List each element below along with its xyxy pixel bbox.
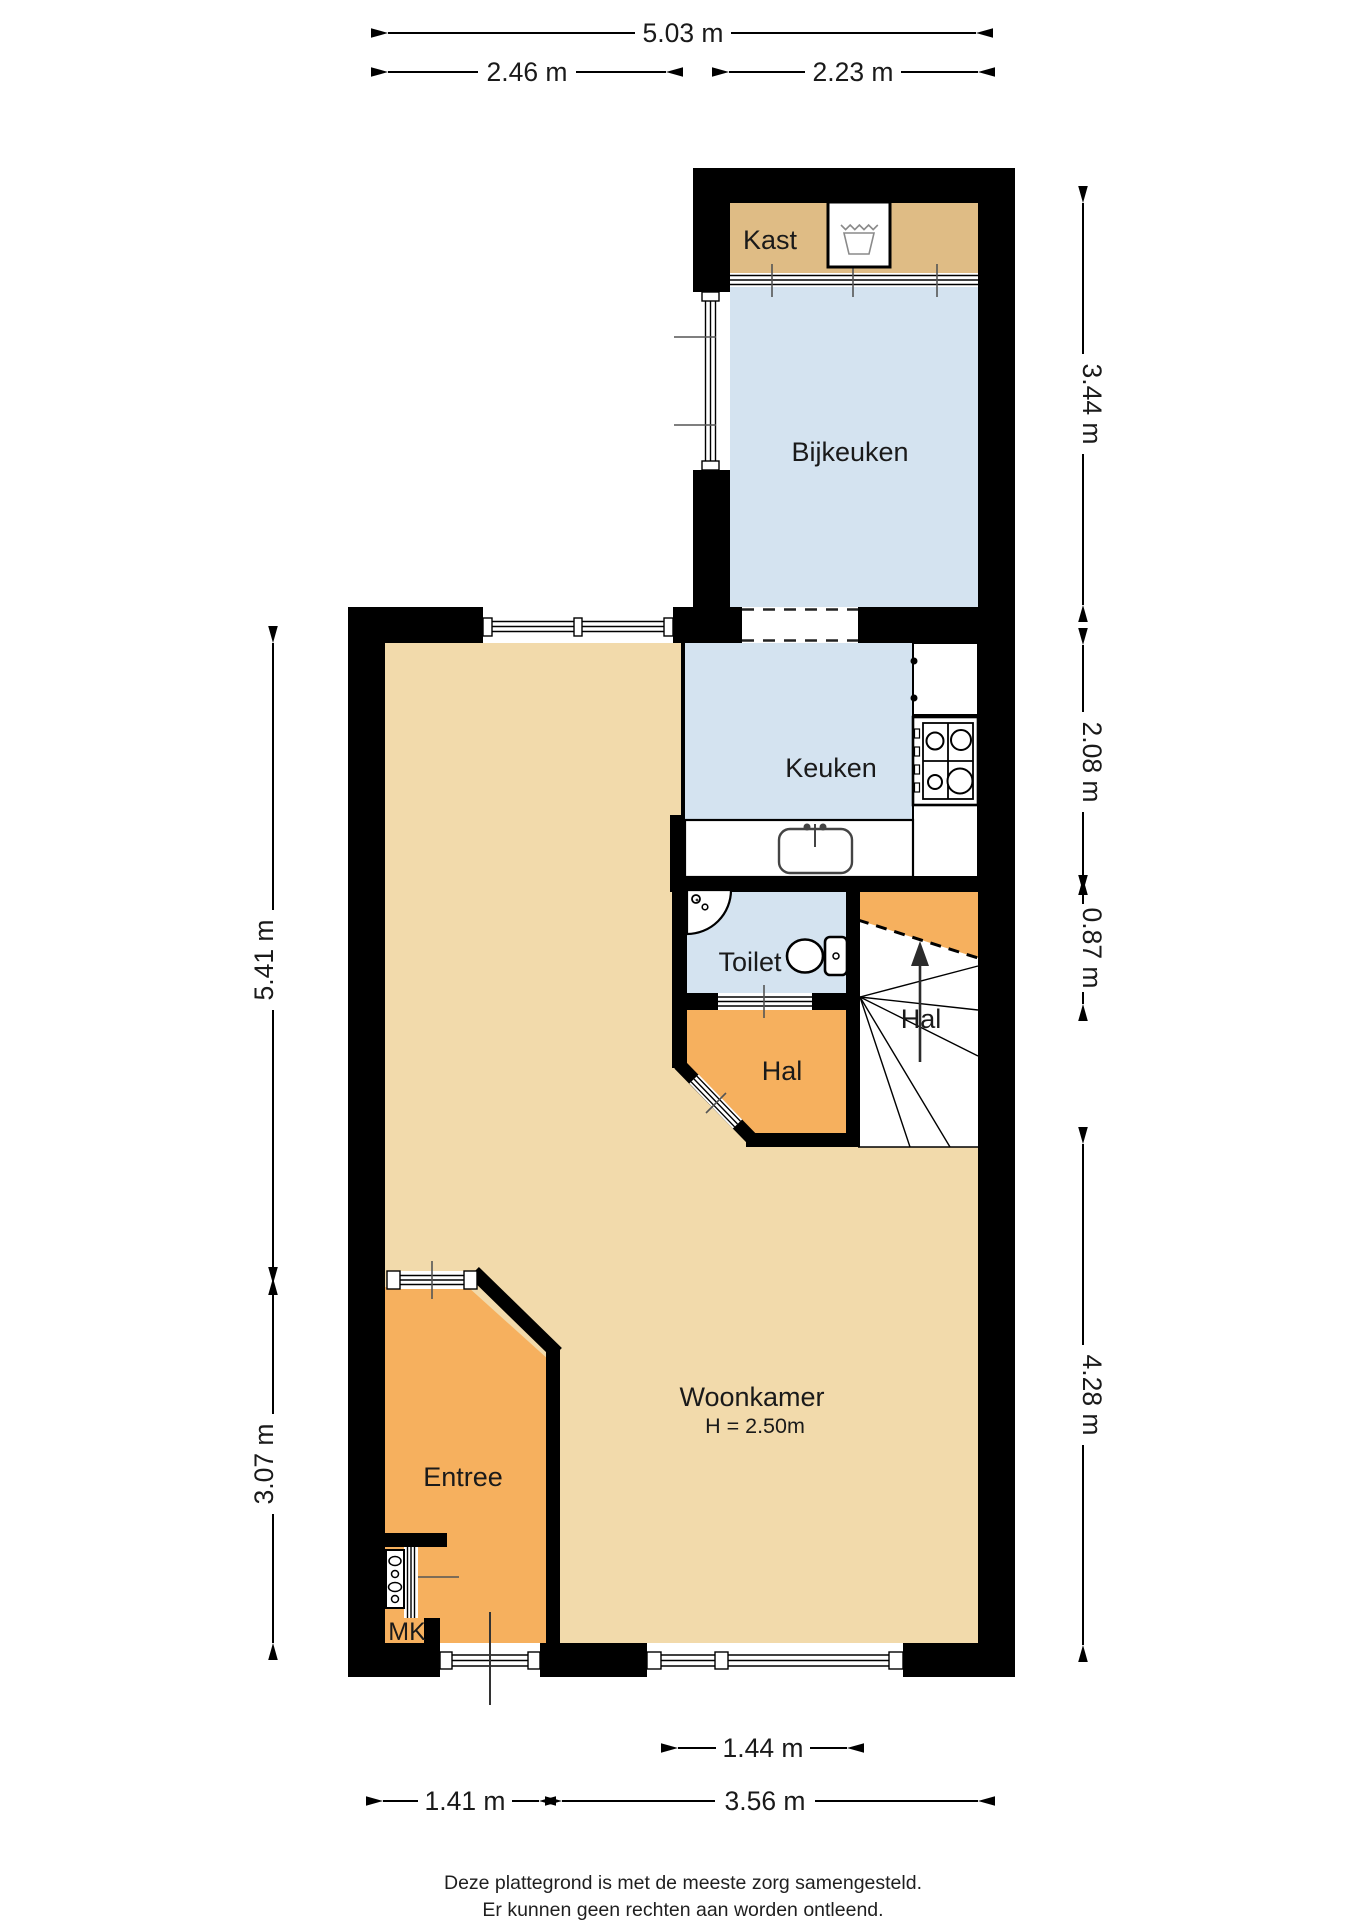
dimension-right-woonkamer: 4.28 m [1077, 1144, 1107, 1645]
window [674, 292, 730, 470]
wall [846, 892, 860, 1133]
dim-label: 3.56 m [724, 1786, 805, 1816]
wall-entree-divider [546, 1347, 560, 1643]
label-woonkamer: Woonkamer [679, 1382, 824, 1412]
wall [978, 168, 1015, 1677]
dimension-bottom-entree: 1.41 m [383, 1786, 539, 1816]
label-mk: MK [388, 1618, 426, 1646]
dim-label: 2.23 m [812, 57, 893, 87]
dim-label: 2.08 m [1077, 721, 1107, 802]
label-entree: Entree [423, 1462, 503, 1492]
window [483, 607, 673, 643]
label-hal-beneden: Hal [762, 1056, 803, 1086]
dim-label: 5.41 m [249, 919, 279, 1000]
label-bijkeuken: Bijkeuken [791, 437, 908, 467]
dimension-top-right: 2.23 m [729, 57, 978, 87]
wall [540, 1643, 647, 1677]
wall [673, 607, 742, 643]
floorplan-drawing: Kast Bijkeuken Keuken Toilet Hal Hal Woo… [0, 0, 1358, 1920]
dim-label: 5.03 m [642, 18, 723, 48]
floorplan-page: Kast Bijkeuken Keuken Toilet Hal Hal Woo… [0, 0, 1358, 1920]
toilet-icon [787, 937, 847, 975]
disclaimer-line-1: Deze plattegrond is met de meeste zorg s… [444, 1872, 922, 1894]
dimension-left-onder: 3.07 m [249, 1284, 279, 1643]
wall-keuken-boundary [681, 643, 685, 820]
wall [693, 470, 730, 610]
label-woonkamer-hoogte: H = 2.50m [705, 1414, 805, 1438]
wall [858, 607, 978, 643]
sink-icon [685, 820, 913, 877]
dimension-left-boven: 5.41 m [249, 643, 279, 1278]
wall-mk-stub [424, 1618, 440, 1643]
dim-label: 1.44 m [722, 1733, 803, 1763]
wall [746, 1133, 860, 1147]
dimension-top-left: 2.46 m [388, 57, 666, 87]
wall [687, 993, 718, 1010]
label-toilet: Toilet [718, 947, 782, 977]
dim-label: 2.46 m [486, 57, 567, 87]
wall [672, 1010, 687, 1068]
window [647, 1643, 903, 1677]
dim-label: 4.28 m [1077, 1354, 1107, 1435]
wall [348, 607, 385, 1677]
wall [693, 203, 730, 292]
dimension-top-total: 5.03 m [388, 18, 976, 48]
dimension-right-keuken: 2.08 m [1077, 645, 1107, 878]
dim-label: 1.41 m [424, 1786, 505, 1816]
label-kast: Kast [743, 225, 798, 255]
dimension-right-bijkeuken: 3.44 m [1077, 203, 1107, 605]
open-doorway-dashed [742, 607, 858, 643]
meter-box-icon [386, 1550, 404, 1608]
wall-mk-top [385, 1533, 447, 1547]
label-hal-boven: Hal [901, 1004, 942, 1034]
washing-machine-icon [828, 202, 890, 267]
dimension-right-toilet: 0.87 m [1077, 892, 1107, 1004]
wall [693, 168, 1015, 203]
stove-icon [913, 717, 978, 805]
dimension-bottom-woonkamer: 3.56 m [562, 1786, 978, 1816]
dim-label: 0.87 m [1077, 907, 1107, 988]
room-keuken [684, 643, 913, 820]
wall [348, 1643, 440, 1677]
label-keuken: Keuken [785, 753, 877, 783]
dim-label: 3.44 m [1077, 363, 1107, 444]
dim-label: 3.07 m [249, 1423, 279, 1504]
dimension-bottom-raam: 1.44 m [678, 1733, 847, 1763]
disclaimer: Deze plattegrond is met de meeste zorg s… [444, 1872, 922, 1920]
wall [903, 1643, 1015, 1677]
wall [812, 993, 846, 1010]
wall [672, 892, 687, 1010]
disclaimer-line-2: Er kunnen geen rechten aan worden ontlee… [482, 1899, 883, 1920]
